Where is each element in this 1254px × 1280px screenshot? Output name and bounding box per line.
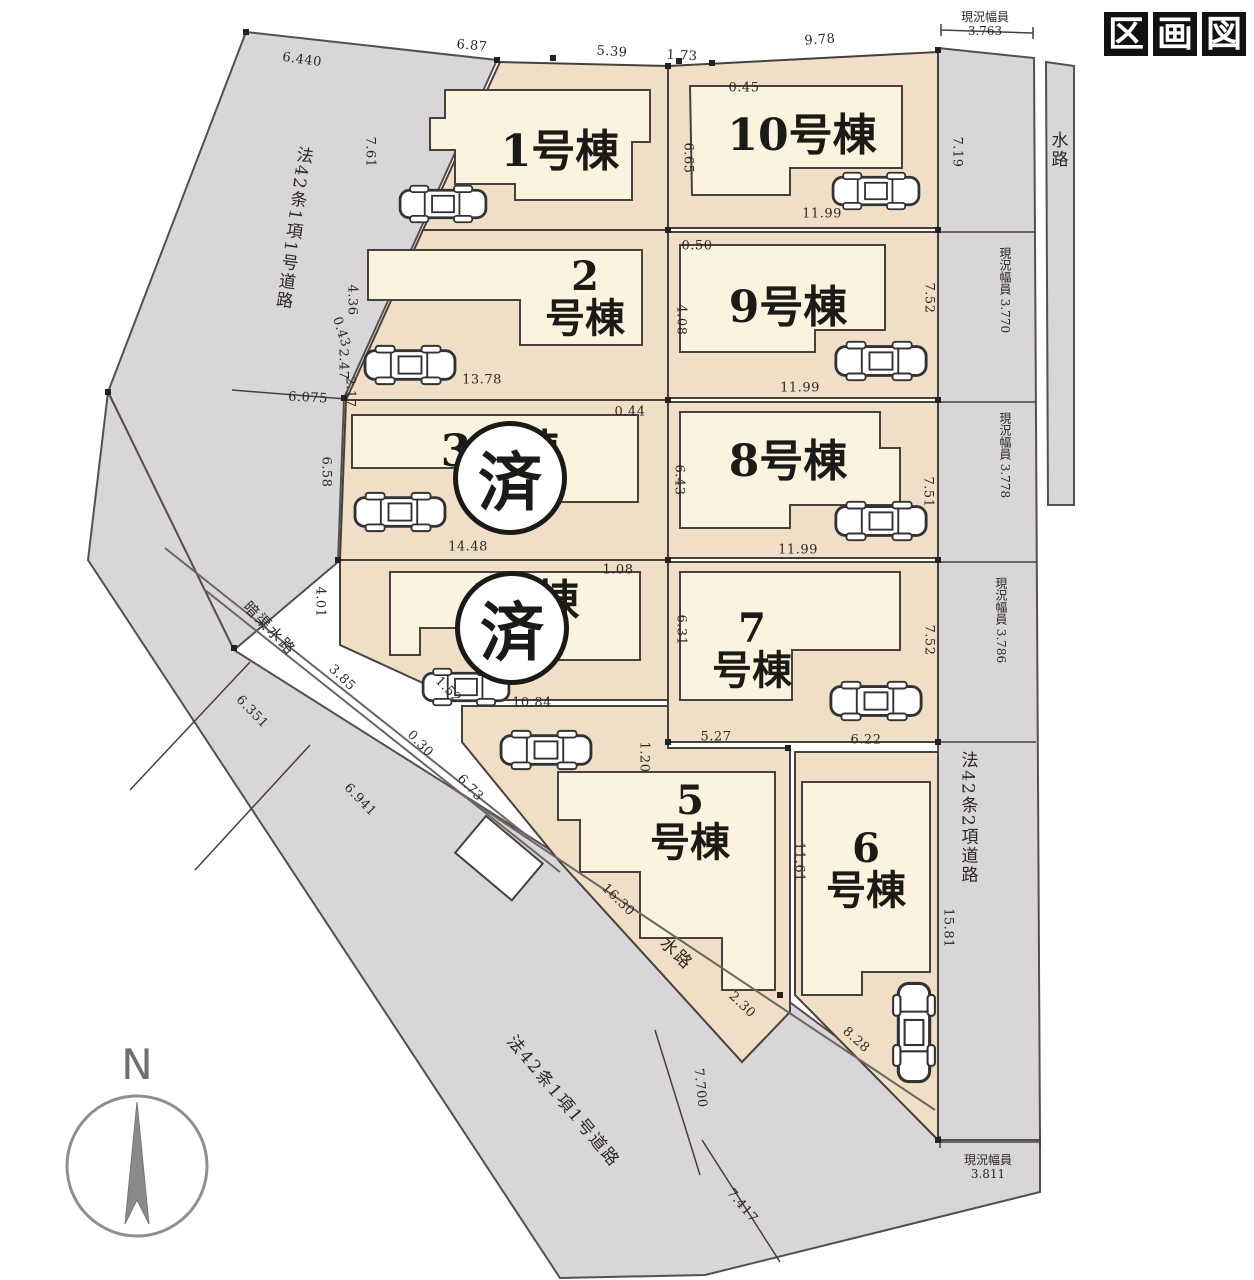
compass-needle <box>125 1102 149 1224</box>
title-char-1: 区 <box>1104 12 1148 56</box>
compass <box>67 1096 207 1236</box>
car-icon-lot7 <box>831 682 921 720</box>
car-icon-lot3 <box>355 493 445 531</box>
car-icon-lot9 <box>836 342 926 380</box>
car-icon-lot5 <box>501 731 591 769</box>
right-road-area <box>938 48 1040 1140</box>
page-title: 区画図 <box>1099 12 1246 56</box>
top-waterway-area <box>1046 62 1074 505</box>
car-icon-lot4 <box>423 669 509 706</box>
compass-north-label: N <box>121 1040 152 1089</box>
lot-map-canvas: { "title": "区画図", "compass_label": "N", … <box>0 0 1254 1280</box>
map-drawing <box>0 0 1254 1280</box>
building-footprint-1 <box>430 90 650 200</box>
car-icon-lot2 <box>365 346 455 384</box>
building-footprint-6 <box>802 782 930 995</box>
car-icon-lot8 <box>836 502 926 540</box>
title-char-3: 図 <box>1202 12 1246 56</box>
car-icon-lot6 <box>893 983 935 1081</box>
title-char-2: 画 <box>1153 12 1197 56</box>
car-icon-lot10 <box>833 173 919 210</box>
car-icon-lot1 <box>400 186 486 223</box>
